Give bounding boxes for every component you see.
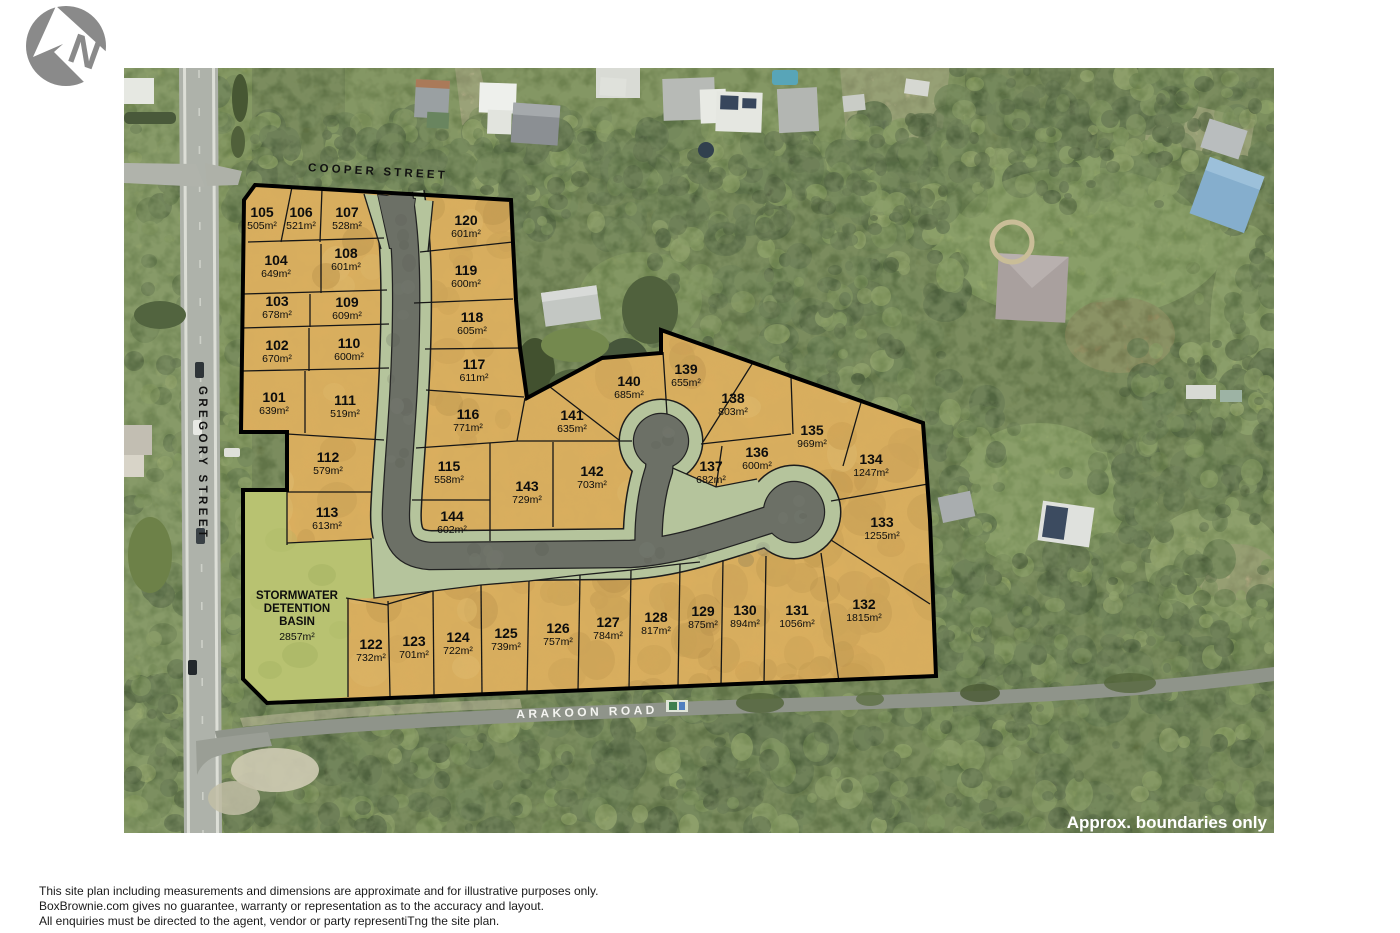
svg-text:104: 104 — [264, 252, 288, 268]
svg-text:601m²: 601m² — [331, 261, 361, 273]
svg-text:131: 131 — [785, 602, 809, 618]
svg-text:103: 103 — [265, 293, 289, 309]
svg-text:BoxBrownie.com gives no guaran: BoxBrownie.com gives no guarantee, warra… — [39, 899, 544, 913]
svg-text:817m²: 817m² — [641, 625, 671, 637]
svg-text:600m²: 600m² — [334, 351, 364, 363]
svg-text:All enquiries must be directed: All enquiries must be directed to the ag… — [39, 914, 499, 928]
svg-text:128: 128 — [644, 609, 668, 625]
svg-text:124: 124 — [446, 629, 470, 645]
svg-text:141: 141 — [560, 407, 584, 423]
svg-text:528m²: 528m² — [332, 220, 362, 232]
svg-text:130: 130 — [733, 602, 757, 618]
svg-text:113: 113 — [316, 504, 339, 520]
svg-text:601m²: 601m² — [451, 228, 481, 240]
svg-text:521m²: 521m² — [286, 220, 316, 232]
svg-text:106: 106 — [289, 204, 313, 220]
svg-text:685m²: 685m² — [614, 389, 644, 401]
svg-text:639m²: 639m² — [259, 405, 289, 417]
svg-text:600m²: 600m² — [451, 278, 481, 290]
svg-text:109: 109 — [335, 294, 359, 310]
svg-text:605m²: 605m² — [457, 325, 487, 337]
svg-text:127: 127 — [596, 614, 620, 630]
svg-text:701m²: 701m² — [399, 649, 429, 661]
svg-text:771m²: 771m² — [453, 422, 483, 434]
svg-text:GREGORY STREET: GREGORY STREET — [196, 386, 208, 540]
svg-text:1247m²: 1247m² — [853, 467, 889, 479]
svg-text:635m²: 635m² — [557, 423, 587, 435]
svg-text:136: 136 — [745, 444, 769, 460]
svg-text:649m²: 649m² — [261, 268, 291, 280]
svg-text:132: 132 — [852, 596, 876, 612]
svg-text:123: 123 — [402, 633, 426, 649]
svg-text:579m²: 579m² — [313, 465, 343, 477]
svg-text:126: 126 — [546, 620, 570, 636]
svg-text:1815m²: 1815m² — [846, 612, 882, 624]
svg-text:732m²: 732m² — [356, 652, 386, 664]
svg-text:729m²: 729m² — [512, 494, 542, 506]
svg-text:757m²: 757m² — [543, 636, 573, 648]
svg-text:558m²: 558m² — [434, 474, 464, 486]
svg-text:138: 138 — [721, 390, 745, 406]
svg-text:115: 115 — [438, 458, 461, 474]
svg-text:600m²: 600m² — [742, 460, 772, 472]
svg-text:110: 110 — [338, 335, 361, 351]
svg-text:519m²: 519m² — [330, 408, 360, 420]
svg-text:129: 129 — [691, 603, 715, 619]
svg-text:107: 107 — [335, 204, 359, 220]
svg-text:This site plan including measu: This site plan including measurements an… — [39, 884, 598, 898]
svg-text:1056m²: 1056m² — [779, 618, 815, 630]
svg-text:739m²: 739m² — [491, 641, 521, 653]
svg-text:703m²: 703m² — [577, 479, 607, 491]
svg-text:118: 118 — [461, 309, 484, 325]
svg-text:722m²: 722m² — [443, 645, 473, 657]
svg-text:1255m²: 1255m² — [864, 530, 900, 542]
svg-text:137: 137 — [699, 458, 723, 474]
svg-text:134: 134 — [859, 451, 883, 467]
svg-text:119: 119 — [455, 262, 478, 278]
svg-text:STORMWATER: STORMWATER — [256, 590, 339, 602]
svg-text:133: 133 — [870, 514, 894, 530]
svg-text:142: 142 — [580, 463, 604, 479]
svg-text:613m²: 613m² — [312, 520, 342, 532]
svg-text:143: 143 — [515, 478, 539, 494]
svg-text:144: 144 — [440, 508, 464, 524]
svg-text:108: 108 — [334, 245, 358, 261]
svg-text:102: 102 — [265, 337, 289, 353]
svg-text:116: 116 — [457, 406, 480, 422]
svg-text:125: 125 — [494, 625, 518, 641]
svg-text:BASIN: BASIN — [279, 616, 315, 628]
svg-text:784m²: 784m² — [593, 630, 623, 642]
svg-text:875m²: 875m² — [688, 619, 718, 631]
svg-text:Approx. boundaries only: Approx. boundaries only — [1067, 813, 1268, 832]
svg-text:105: 105 — [250, 204, 274, 220]
svg-text:DETENTION: DETENTION — [264, 603, 330, 615]
svg-text:2857m²: 2857m² — [279, 631, 315, 643]
svg-text:894m²: 894m² — [730, 618, 760, 630]
svg-text:111: 111 — [334, 392, 356, 408]
svg-text:969m²: 969m² — [797, 438, 827, 450]
svg-text:609m²: 609m² — [332, 310, 362, 322]
svg-text:803m²: 803m² — [718, 406, 748, 418]
svg-text:505m²: 505m² — [247, 220, 277, 232]
svg-text:112: 112 — [317, 449, 340, 465]
svg-text:135: 135 — [800, 422, 824, 438]
svg-text:122: 122 — [359, 636, 383, 652]
svg-text:670m²: 670m² — [262, 353, 292, 365]
svg-text:682m²: 682m² — [696, 474, 726, 486]
svg-text:602m²: 602m² — [437, 524, 467, 536]
svg-text:140: 140 — [617, 373, 641, 389]
svg-text:655m²: 655m² — [671, 377, 701, 389]
svg-text:611m²: 611m² — [460, 372, 489, 384]
svg-text:120: 120 — [454, 212, 478, 228]
svg-text:678m²: 678m² — [262, 309, 292, 321]
svg-text:139: 139 — [674, 361, 698, 377]
svg-text:101: 101 — [262, 389, 286, 405]
svg-text:117: 117 — [463, 356, 486, 372]
